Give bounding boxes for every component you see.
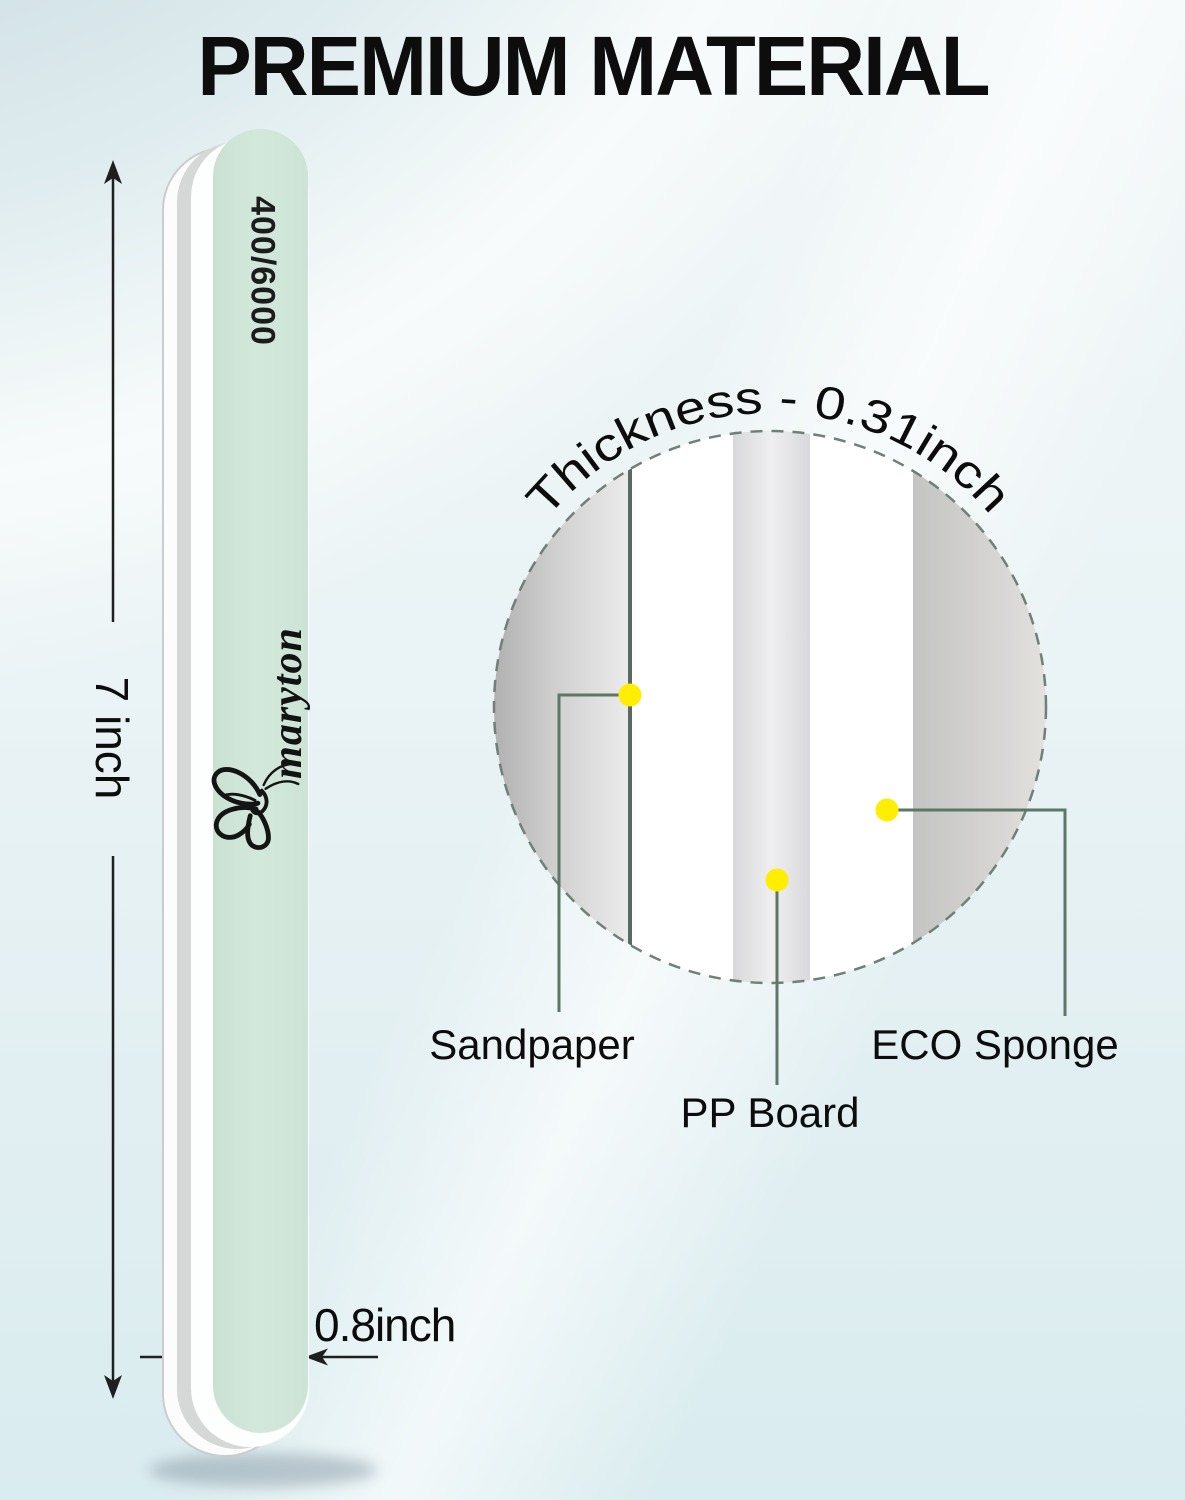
length-label: 7 inch <box>85 677 139 800</box>
cross-section-circle <box>494 431 1046 983</box>
page-title: PREMIUM MATERIAL <box>197 24 988 108</box>
pp-board-layer-stripe <box>733 431 810 983</box>
pp-board-label: PP Board <box>680 1089 859 1137</box>
arrow-up-icon <box>104 160 122 184</box>
eco-sponge-label: ECO Sponge <box>871 1021 1119 1069</box>
sandpaper-label: Sandpaper <box>429 1021 635 1069</box>
product-infographic: PREMIUM MATERIAL Thickness - 0.31inch <box>0 0 1185 1500</box>
grit-label: 400/6000 <box>243 196 282 346</box>
sandpaper-layer-stripe <box>494 431 632 983</box>
width-label: 0.8inch <box>314 1298 455 1352</box>
arrow-down-icon <box>104 1375 122 1399</box>
butterfly-logo-icon <box>208 756 304 860</box>
file-shadow <box>149 1453 377 1487</box>
eco-sponge-layer-stripe <box>913 431 1046 983</box>
